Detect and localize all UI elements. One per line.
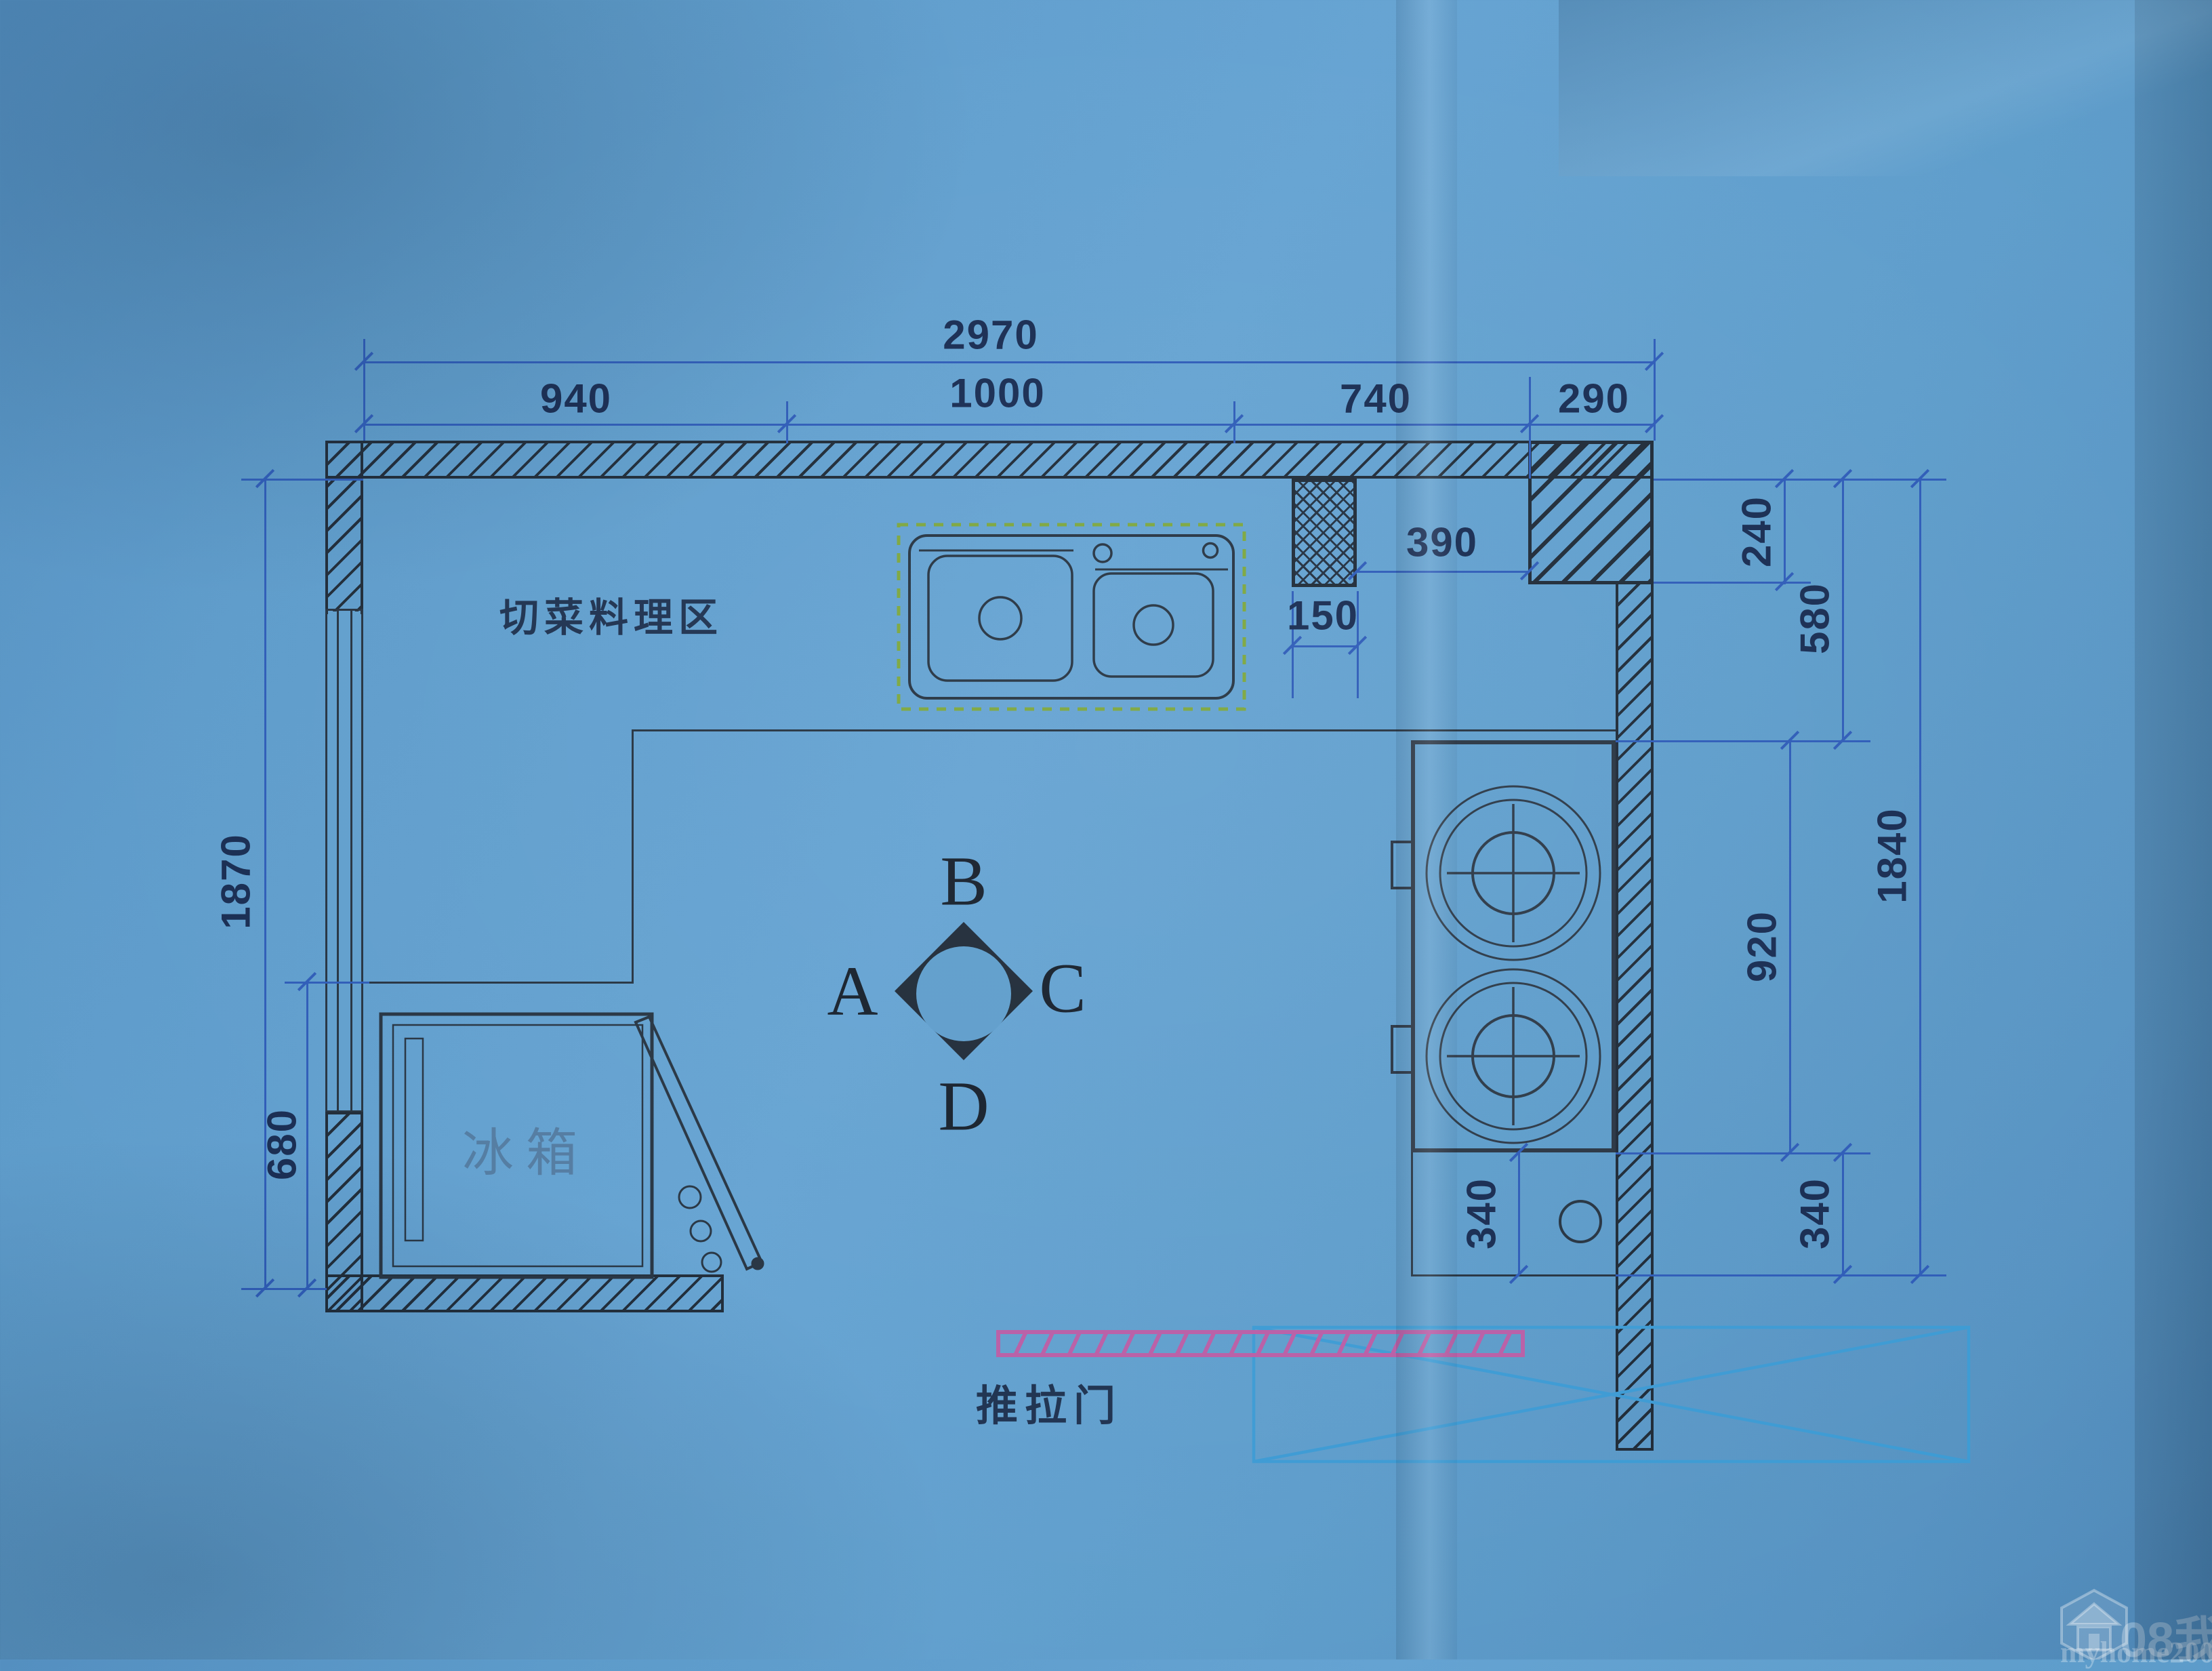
dim-label-240: 240 [1734, 496, 1780, 567]
sliding-door-label: 推拉门 [976, 1371, 1122, 1432]
extension-line [1616, 1152, 1870, 1154]
dim-label-2970: 2970 [943, 312, 1038, 359]
dim-line-top-segments [363, 424, 1654, 426]
dim-label-580: 580 [1792, 582, 1839, 654]
dim-line-150 [1292, 645, 1357, 647]
sliding-door-symbol [996, 1330, 1525, 1357]
dim-line-680 [306, 982, 308, 1288]
compass-letter-d: D [938, 1066, 989, 1147]
extension-line [1529, 377, 1531, 479]
dim-label-740: 740 [1340, 376, 1412, 422]
dim-label-920: 920 [1739, 910, 1786, 982]
dim-label-940: 940 [540, 376, 612, 422]
dim-label-390: 390 [1406, 519, 1478, 566]
compass-letter-c: C [1039, 948, 1086, 1029]
extension-line [1616, 740, 1870, 742]
extension-line [241, 479, 363, 481]
extension-line [1616, 1274, 1946, 1276]
extension-line [1654, 582, 1811, 584]
stove-burners [1427, 786, 1600, 1143]
dim-label-150: 150 [1287, 592, 1359, 639]
dim-label-1840: 1840 [1869, 807, 1916, 903]
dim-label-1870: 1870 [213, 833, 260, 929]
dim-line-390 [1357, 571, 1529, 573]
dim-line-1840 [1919, 479, 1921, 1274]
extension-line [285, 982, 369, 984]
dim-label-290: 290 [1558, 376, 1630, 422]
extension-line [241, 1288, 327, 1290]
dim-label-340-outer: 340 [1792, 1177, 1839, 1249]
dim-line-920 [1789, 740, 1791, 1152]
compass-letter-b: B [940, 841, 987, 922]
dim-label-680: 680 [259, 1108, 306, 1180]
double-sink [899, 525, 1244, 709]
prep-area-label: 切菜料理区 [499, 586, 723, 643]
kitchen-floorplan-photo: 2970 940 1000 740 290 390 150 1870 680 2… [0, 0, 2212, 1659]
dim-line-340-inner [1518, 1152, 1520, 1274]
dim-line-2970 [363, 361, 1654, 363]
fridge-label: 冰箱 [462, 1111, 590, 1186]
extension-line [1654, 479, 1946, 481]
dim-line-340-outer [1842, 1152, 1844, 1274]
watermark-url: myhome2008.com [2060, 1635, 2212, 1670]
dim-line-240 [1784, 479, 1786, 584]
compass-icon [895, 922, 1033, 1060]
compass-letter-a: A [827, 951, 878, 1032]
dim-label-1000: 1000 [949, 370, 1045, 417]
dim-label-340-inner: 340 [1458, 1177, 1505, 1249]
outlet-circle [1560, 1201, 1601, 1242]
dim-line-580 [1842, 479, 1844, 740]
